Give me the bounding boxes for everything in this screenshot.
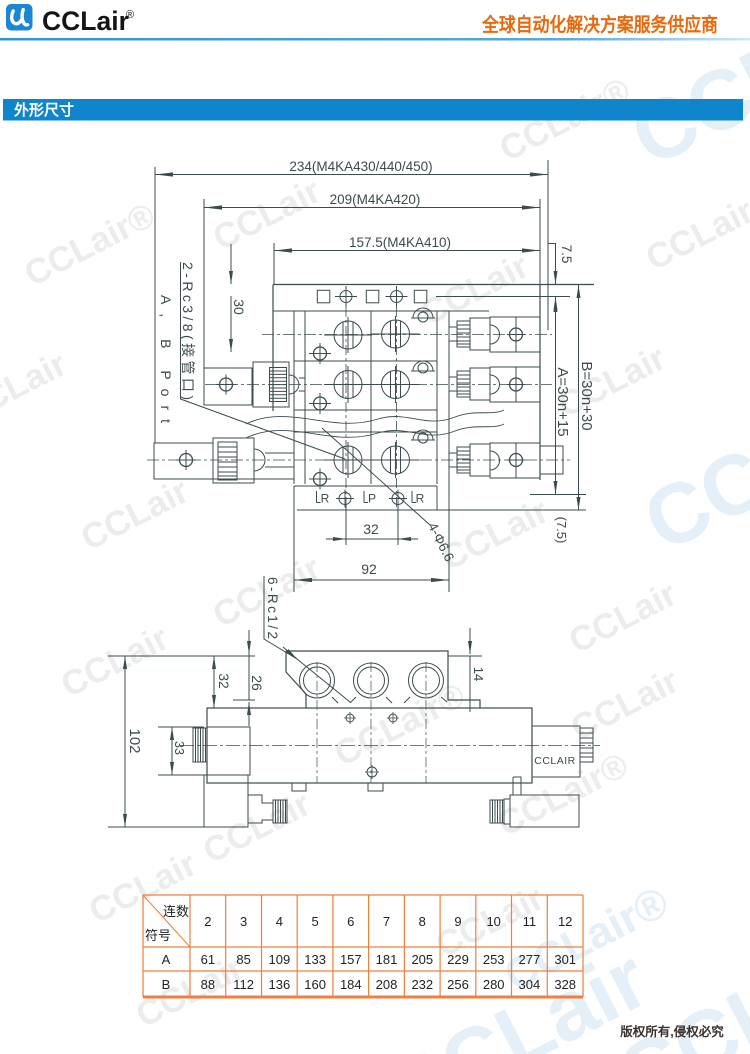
svg-text:CCLAIR: CCLAIR [534, 755, 576, 767]
svg-text:102: 102 [126, 728, 143, 753]
svg-text:CCLair: CCLair [435, 491, 555, 578]
svg-text:A: A [162, 952, 171, 967]
svg-text:CCLair: CCLair [207, 171, 327, 258]
svg-text:229: 229 [447, 952, 469, 967]
svg-text:30: 30 [231, 299, 247, 315]
svg-text:CCLair: CCLair [565, 661, 685, 748]
svg-text:253: 253 [483, 952, 505, 967]
svg-text:4: 4 [276, 914, 283, 929]
svg-text:7: 7 [383, 914, 390, 929]
svg-text:9: 9 [454, 914, 461, 929]
svg-text:33: 33 [172, 741, 186, 755]
svg-text:61: 61 [201, 952, 215, 967]
svg-text:280: 280 [483, 977, 505, 992]
svg-text:P: P [368, 492, 376, 506]
svg-text:CCLair: CCLair [42, 6, 129, 36]
svg-text:133: 133 [304, 952, 326, 967]
svg-text:256: 256 [447, 977, 469, 992]
svg-text:3: 3 [240, 914, 247, 929]
svg-text:CCLair: CCLair [0, 344, 73, 431]
svg-text:2: 2 [204, 914, 211, 929]
svg-text:301: 301 [554, 952, 576, 967]
svg-text:6: 6 [347, 914, 354, 929]
svg-text:328: 328 [554, 977, 576, 992]
svg-text:304: 304 [519, 977, 541, 992]
svg-text:CCLair®: CCLair® [328, 675, 471, 774]
svg-text:92: 92 [361, 561, 377, 577]
svg-text:连数: 连数 [163, 904, 189, 919]
svg-text:B: B [162, 977, 171, 992]
svg-text:外形尺寸: 外形尺寸 [13, 101, 74, 119]
svg-text:232: 232 [411, 977, 433, 992]
svg-text:32: 32 [363, 521, 379, 537]
svg-text:205: 205 [411, 952, 433, 967]
svg-text:157: 157 [340, 952, 362, 967]
svg-text:CCLair: CCLair [415, 246, 535, 333]
svg-text:10: 10 [486, 914, 500, 929]
svg-text:112: 112 [233, 977, 254, 992]
svg-text:版权所有,侵权必究: 版权所有,侵权必究 [620, 1024, 724, 1039]
svg-text:109: 109 [269, 952, 291, 967]
svg-text:2-Rc3/8(接管口): 2-Rc3/8(接管口) [180, 262, 196, 400]
svg-text:A, B Port: A, B Port [158, 295, 174, 423]
svg-text:184: 184 [340, 977, 362, 992]
svg-text:181: 181 [376, 952, 398, 967]
svg-text:26: 26 [249, 675, 265, 691]
svg-text:8: 8 [419, 914, 426, 929]
svg-text:全球自动化解决方案服务供应商: 全球自动化解决方案服务供应商 [481, 13, 718, 36]
svg-text:85: 85 [236, 952, 250, 967]
svg-text:12: 12 [558, 914, 572, 929]
svg-text:6-Rc1/2: 6-Rc1/2 [265, 577, 280, 639]
svg-text:209(M4KA420): 209(M4KA420) [330, 192, 421, 207]
svg-text:234(M4KA430/440/450): 234(M4KA430/440/450) [289, 159, 432, 174]
svg-text:157.5(M4KA410): 157.5(M4KA410) [349, 235, 451, 250]
svg-text:CCLair: CCLair [640, 191, 750, 278]
svg-text:160: 160 [304, 977, 326, 992]
svg-text:R: R [416, 492, 425, 506]
svg-text:CCLair: CCLair [197, 784, 317, 871]
svg-text:A=30n+15: A=30n+15 [554, 367, 571, 436]
svg-text:7.5: 7.5 [559, 245, 574, 264]
svg-text:(7.5): (7.5) [554, 517, 569, 544]
svg-text:符号: 符号 [145, 928, 171, 943]
svg-text:®: ® [126, 9, 134, 21]
svg-text:CCLair: CCLair [563, 574, 683, 661]
svg-text:208: 208 [376, 977, 398, 992]
svg-text:5: 5 [311, 914, 318, 929]
svg-text:CCLair: CCLair [75, 471, 195, 558]
svg-text:11: 11 [523, 914, 537, 929]
svg-text:B=30n+30: B=30n+30 [578, 361, 595, 430]
svg-text:136: 136 [269, 977, 291, 992]
svg-text:CCLair: CCLair [629, 359, 750, 570]
svg-text:32: 32 [216, 673, 232, 689]
svg-text:277: 277 [519, 952, 541, 967]
svg-text:14: 14 [471, 667, 486, 681]
svg-text:88: 88 [201, 977, 215, 992]
svg-text:R: R [321, 492, 330, 506]
svg-text:CCLair®: CCLair® [18, 195, 161, 294]
svg-text:CCLair: CCLair [55, 618, 175, 705]
